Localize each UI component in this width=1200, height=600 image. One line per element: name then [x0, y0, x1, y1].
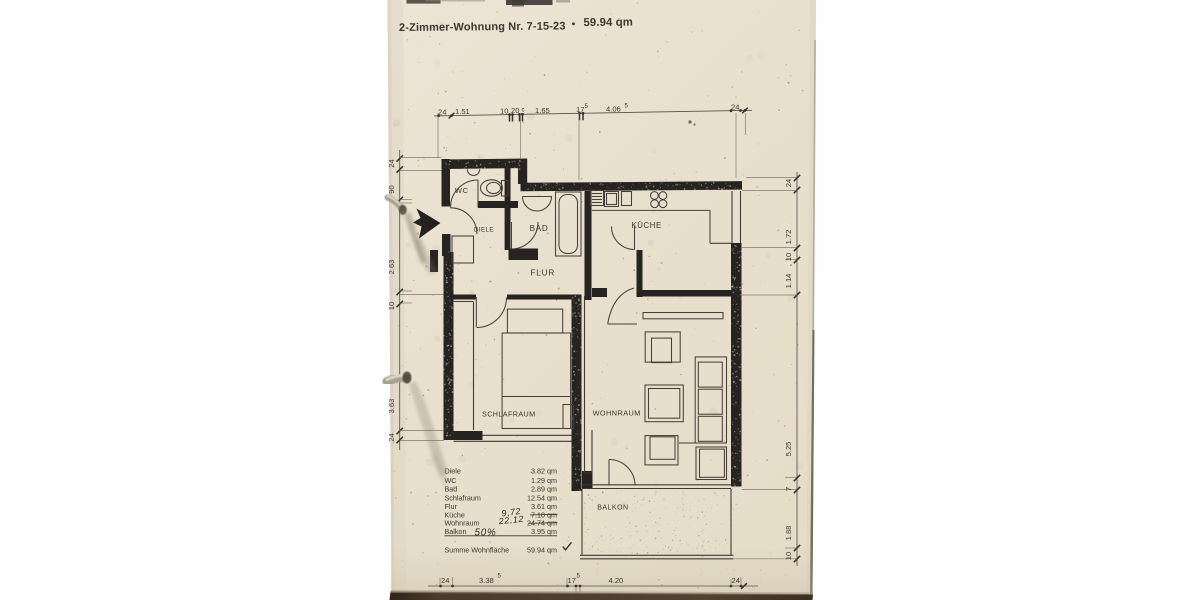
svg-text:7: 7: [784, 487, 793, 491]
svg-text:24: 24: [387, 159, 396, 167]
svg-text:10: 10: [784, 552, 793, 560]
svg-text:24: 24: [438, 108, 446, 117]
svg-text:BALKON: BALKON: [597, 505, 628, 512]
svg-text:4.06: 4.06: [606, 105, 621, 114]
svg-text:Summe Wohnfläche: Summe Wohnfläche: [445, 545, 510, 554]
svg-text:1.29 qm: 1.29 qm: [531, 476, 557, 485]
svg-text:1.14: 1.14: [784, 274, 793, 289]
svg-text:c: c: [522, 107, 525, 113]
svg-text:FLUR: FLUR: [531, 269, 556, 278]
svg-text:10: 10: [500, 106, 508, 115]
svg-text:SCHLAFRAUM: SCHLAFRAUM: [482, 410, 536, 419]
svg-text:Balkon: Balkon: [445, 527, 467, 536]
svg-text:1.72: 1.72: [784, 230, 793, 245]
svg-text:10: 10: [784, 253, 793, 261]
svg-text:24: 24: [441, 576, 449, 585]
svg-text:24: 24: [387, 433, 396, 441]
svg-text:17: 17: [576, 105, 584, 114]
svg-text:3.38: 3.38: [479, 576, 494, 585]
svg-text:BAD: BAD: [530, 224, 549, 233]
svg-text:17: 17: [568, 576, 576, 585]
svg-text:90: 90: [387, 185, 396, 193]
svg-text:2-Zimmer-Wohnung Nr. 7-15-23: 2-Zimmer-Wohnung Nr. 7-15-23: [399, 20, 566, 34]
svg-text:50%: 50%: [475, 528, 497, 539]
svg-text:10: 10: [387, 302, 396, 310]
svg-text:59.94 qm: 59.94 qm: [527, 545, 557, 554]
svg-text:59.94 qm: 59.94 qm: [583, 17, 633, 29]
svg-text:5.25: 5.25: [784, 442, 793, 457]
svg-text:2.89 qm: 2.89 qm: [531, 485, 557, 494]
svg-text:WC: WC: [455, 186, 469, 195]
svg-text:1.65: 1.65: [535, 106, 550, 115]
svg-text:3.63: 3.63: [387, 399, 396, 414]
svg-text:1.88: 1.88: [784, 526, 793, 541]
svg-text:24: 24: [732, 576, 740, 585]
svg-text:20: 20: [511, 106, 519, 115]
svg-text:24: 24: [784, 179, 793, 187]
svg-text:DIELE: DIELE: [474, 227, 494, 234]
svg-text:3.82 qm: 3.82 qm: [531, 467, 557, 476]
svg-text:1.51: 1.51: [455, 107, 470, 116]
svg-text:WOHNRAUM: WOHNRAUM: [593, 409, 641, 418]
svg-text:2.63: 2.63: [387, 260, 396, 275]
svg-text:4.20: 4.20: [609, 576, 624, 585]
svg-text:KÜCHE: KÜCHE: [632, 221, 662, 230]
svg-text:3.95 qm: 3.95 qm: [531, 527, 557, 536]
svg-text:24: 24: [731, 102, 739, 111]
